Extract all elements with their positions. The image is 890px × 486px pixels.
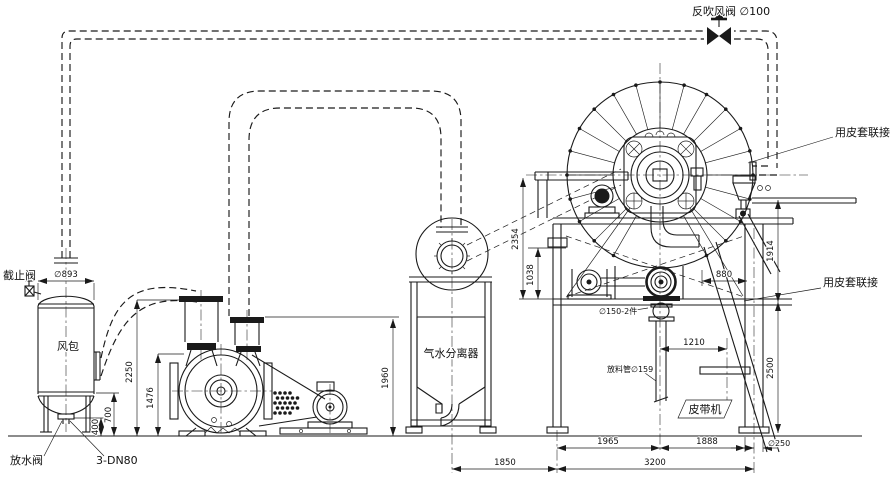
sleeve-coupling-bottom-label: 用皮套联接 [823,276,878,289]
dim-discharge-offset: 1210 [683,338,705,348]
stop-valve-icon [25,281,41,296]
dim-left-span: 1965 [597,437,619,447]
dim-total-span: 3200 [644,458,666,468]
blowback-pipe: 反吹风阀 ∅100 [62,4,777,258]
air-tank-label: 风包 [57,340,79,353]
discharge-pipe-label: 放料管∅159 [607,364,653,374]
dim-drain-height: 400 [91,419,101,435]
dim-inlet-height: 2250 [125,361,135,383]
dim-drum-axis-height: 2354 [511,228,521,250]
belt-conveyor: 皮带机 [678,214,780,452]
dim-lower-frame-height: 2500 [766,357,776,379]
discharge-port-label: ∅150-2件 [599,306,637,316]
dim-leg-diameter: ∅250 [768,439,790,448]
sleeve-coupling-callouts: 用皮套联接 用皮套联接 [744,126,890,301]
air-tank: 风包 截止阀 [3,248,197,432]
dim-platform-height: 1038 [526,264,536,286]
dim-right-span: 1888 [696,437,718,447]
agitator-drive [568,269,645,299]
belt-conveyor-label: 皮带机 [689,402,722,416]
drain-valve-label: 放水阀 [10,453,43,467]
snift-valve [733,176,755,218]
separator-label: 气水分离器 [424,346,479,360]
dim-suction-height: 1476 [146,387,156,409]
drawing-canvas: 反吹风阀 ∅100 风包 截止阀 ∅893 [0,0,890,486]
dim-separator-height: 1960 [381,367,391,389]
dim-separator-span: 1850 [494,458,516,468]
dim-tank-clearance: 700 [104,407,114,423]
blowback-valve-icon [704,13,734,47]
stop-valve-label: 截止阀 [3,268,36,282]
sleeve-coupling-top-label: 用皮套联接 [835,126,890,139]
dim-tank-diameter: ∅893 [54,270,78,280]
engineering-drawing-sheet: 反吹风阀 ∅100 风包 截止阀 ∅893 [0,0,890,486]
dim-rear-offset: 880 [716,270,732,280]
drain-spec-label: 3-DN80 [96,454,138,467]
pump-dimensions: 2250 1476 [125,300,184,436]
bottom-dimensions: 1965 1888 ∅250 1850 3200 [452,437,790,469]
tank-dimensions: ∅893 400 700 放水阀 3-DN80 [10,270,138,467]
dim-upper-frame-height: 1914 [766,240,776,262]
hatch-dots [273,391,299,415]
blowback-valve-label: 反吹风阀 ∅100 [692,4,770,18]
